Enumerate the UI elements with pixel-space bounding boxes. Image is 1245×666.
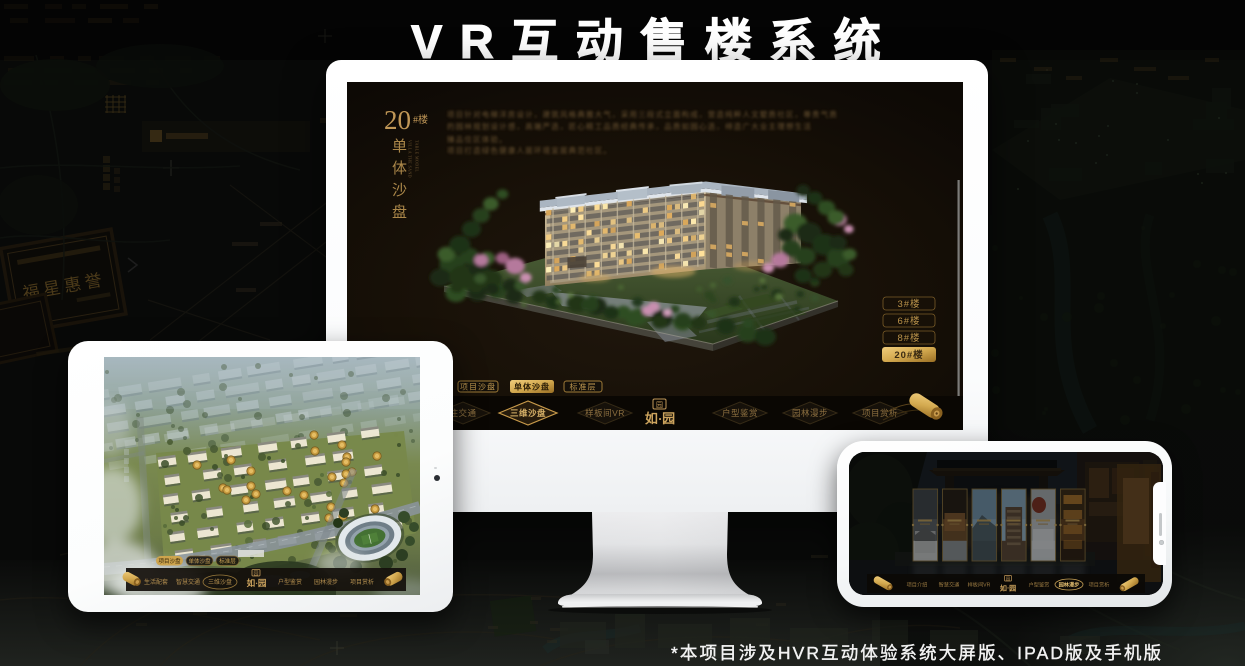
svg-text:TABLE MODEL: TABLE MODEL — [415, 140, 420, 172]
svg-text:园林漫步: 园林漫步 — [1059, 581, 1080, 589]
svg-text:3#楼: 3#楼 — [897, 298, 920, 310]
svg-text:园林漫步: 园林漫步 — [792, 408, 828, 418]
svg-text:沙: 沙 — [392, 183, 407, 199]
svg-text:项目赏析: 项目赏析 — [1089, 581, 1110, 589]
svg-text:标准层: 标准层 — [570, 382, 597, 392]
svg-text:项目打造绿色健康人居环境宜居典范社区。: 项目打造绿色健康人居环境宜居典范社区。 — [447, 146, 612, 155]
svg-text:#楼: #楼 — [413, 113, 428, 126]
svg-text:项目针对电梯洋房设计，建筑风格典雅大气，采用三段式立面构成，: 项目针对电梯洋房设计，建筑风格典雅大气，采用三段式立面构成，营造纯粹人文墅质社区… — [447, 110, 838, 119]
svg-text:体: 体 — [392, 160, 407, 177]
svg-text:生活配套: 生活配套 — [144, 578, 168, 586]
svg-text:样板间VR: 样板间VR — [585, 408, 625, 418]
svg-text:单体沙盘: 单体沙盘 — [188, 557, 211, 565]
svg-text:8#楼: 8#楼 — [897, 332, 920, 344]
svg-text:智慧交通: 智慧交通 — [176, 578, 200, 586]
svg-text:如·园: 如·园 — [1000, 584, 1016, 593]
svg-text:6#楼: 6#楼 — [897, 315, 920, 327]
svg-text:的园林规划设计感，高端严选，匠心精工品质经典传承，品质如园心: 的园林规划设计感，高端严选，匠心精工品质经典传承，品质如园心选，缔造广大业主理想… — [447, 122, 812, 131]
svg-text:20: 20 — [384, 105, 411, 135]
svg-text:盘: 盘 — [392, 203, 407, 221]
svg-text:户型鉴赏: 户型鉴赏 — [1029, 581, 1050, 589]
svg-text:VILLA THE SAND: VILLA THE SAND — [408, 140, 413, 178]
svg-text:户型鉴赏: 户型鉴赏 — [722, 408, 758, 418]
svg-text:如·园: 如·园 — [247, 578, 267, 588]
svg-text:标准层: 标准层 — [219, 557, 236, 565]
svg-text:单: 单 — [392, 138, 407, 155]
svg-text:三维沙盘: 三维沙盘 — [208, 578, 232, 586]
svg-text:园林漫步: 园林漫步 — [314, 578, 338, 586]
svg-text:园: 园 — [656, 401, 663, 409]
svg-text:20#楼: 20#楼 — [894, 349, 923, 361]
svg-text:户型鉴赏: 户型鉴赏 — [278, 578, 302, 586]
svg-text:三维沙盘: 三维沙盘 — [510, 408, 546, 418]
svg-text:项目赏析: 项目赏析 — [350, 578, 374, 586]
svg-text:如·园: 如·园 — [645, 411, 675, 426]
svg-text:智慧交通: 智慧交通 — [939, 581, 961, 589]
svg-text:园: 园 — [253, 571, 258, 577]
svg-text:项目介绍: 项目介绍 — [907, 581, 928, 589]
svg-text:样板间VR: 样板间VR — [968, 581, 991, 589]
svg-text:住交通: 住交通 — [449, 408, 476, 418]
svg-text:臻品住区体验。: 臻品住区体验。 — [447, 135, 508, 144]
svg-text:项目沙盘: 项目沙盘 — [460, 382, 496, 392]
svg-text:单体沙盘: 单体沙盘 — [514, 382, 550, 392]
svg-text:项目沙盘: 项目沙盘 — [158, 557, 181, 565]
